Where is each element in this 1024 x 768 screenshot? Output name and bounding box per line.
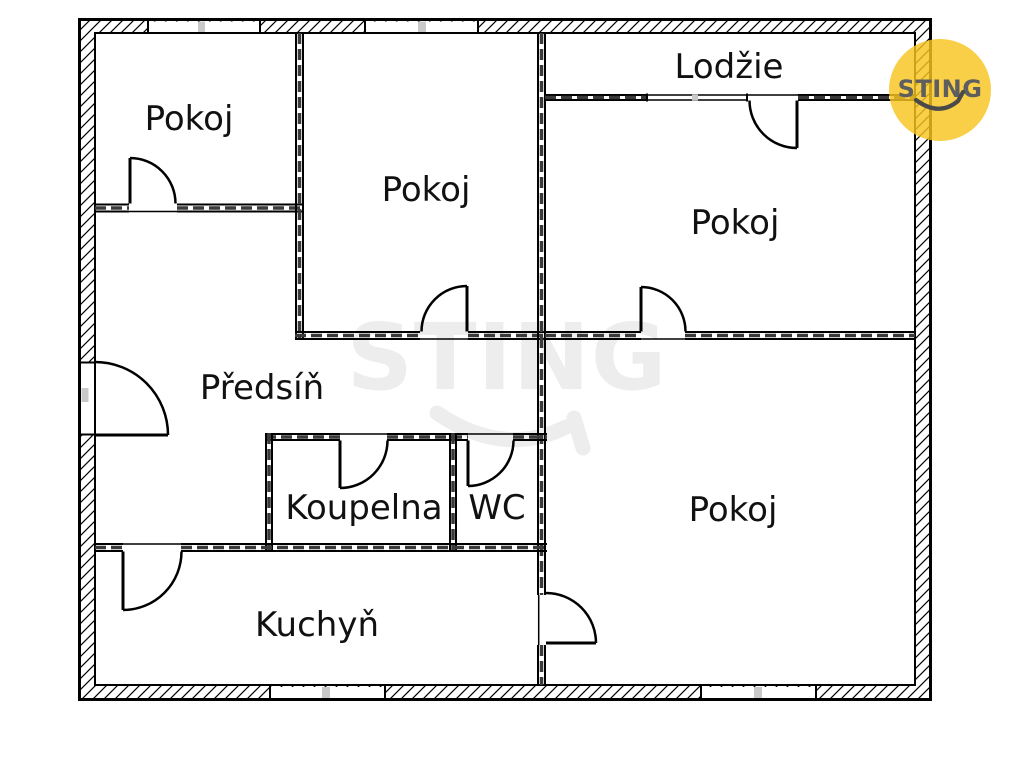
label-pokoj-bottom-right: Pokoj (689, 490, 778, 530)
label-koupelna: Koupelna (285, 488, 442, 528)
floor-plan-page: STING (0, 0, 1024, 768)
label-kuchyn: Kuchyň (255, 605, 379, 645)
label-pokoj-top-right: Pokoj (691, 203, 780, 243)
label-lodzie: Lodžie (675, 47, 784, 87)
label-pokoj-top-left: Pokoj (145, 99, 234, 139)
entrance-opening (79, 362, 95, 435)
label-pokoj-center: Pokoj (382, 170, 471, 210)
floor-plan: STING (0, 0, 1024, 768)
label-wc: WC (468, 488, 525, 528)
label-predsin: Předsíň (200, 368, 324, 408)
logo-text: STING (898, 75, 983, 103)
sting-logo-badge: STING (889, 39, 991, 141)
